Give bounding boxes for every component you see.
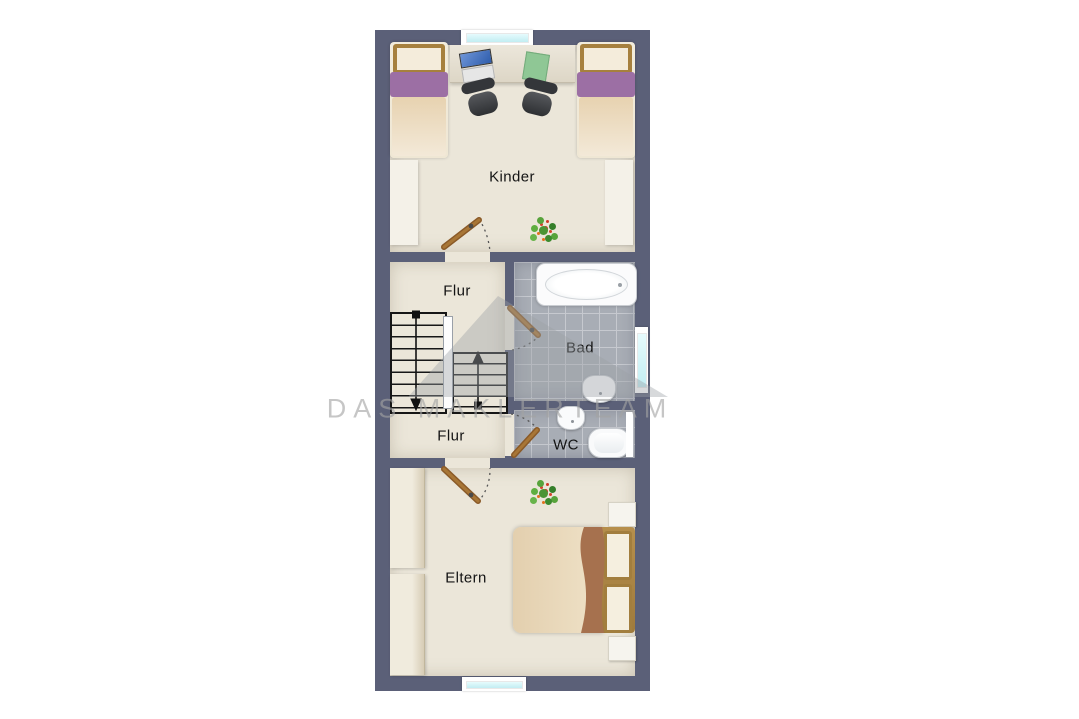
window-bottom <box>462 677 526 691</box>
eltern-bed-mattress <box>513 527 603 633</box>
stairs-left-flight <box>390 312 447 414</box>
wardrobe-bottom <box>390 574 425 675</box>
label-wc: WC <box>553 437 579 454</box>
pillow <box>604 584 632 633</box>
wardrobe-top <box>390 468 425 568</box>
bed-blanket <box>577 72 635 97</box>
plant-icon <box>526 476 560 510</box>
label-bad: Bad <box>566 340 594 357</box>
stairs-divider <box>443 316 453 409</box>
bed-mattress <box>579 97 633 156</box>
eltern-door-opening <box>445 458 490 468</box>
bed-blanket <box>390 72 448 97</box>
pillow <box>604 531 632 580</box>
floor-plan: Kinder Flur Bad Flur WC Eltern DAS MAKLE… <box>0 0 1079 719</box>
bed-headboard <box>580 44 632 74</box>
kinder-door-opening <box>445 252 490 262</box>
stairs-right-flight <box>452 352 508 414</box>
label-eltern: Eltern <box>445 570 487 587</box>
kinder-bed-right <box>577 42 635 158</box>
toilet-icon <box>588 428 630 458</box>
label-flur-bottom: Flur <box>437 428 464 445</box>
wc-door-opening <box>505 414 514 456</box>
plant-icon <box>526 213 560 247</box>
label-flur-top: Flur <box>443 283 470 300</box>
kinder-shelf-left <box>390 160 418 245</box>
bad-sink-icon <box>582 375 616 403</box>
wc-sink-icon <box>557 406 585 430</box>
window-bad <box>635 327 648 393</box>
kinder-bed-left <box>390 42 448 158</box>
bad-door-opening <box>505 306 514 350</box>
bathtub-icon <box>536 263 637 306</box>
wc-wall-strip <box>626 412 633 457</box>
nightstand-top <box>608 502 636 527</box>
kinder-shelf-right <box>605 160 633 245</box>
bed-mattress <box>392 97 446 156</box>
eltern-bed-headboard <box>600 527 635 633</box>
label-kinder: Kinder <box>489 169 535 186</box>
nightstand-bottom <box>608 636 636 661</box>
window-top <box>461 30 533 45</box>
window-glass <box>637 333 647 388</box>
window-glass <box>466 681 523 689</box>
bed-headboard <box>393 44 445 74</box>
window-glass <box>466 33 529 43</box>
